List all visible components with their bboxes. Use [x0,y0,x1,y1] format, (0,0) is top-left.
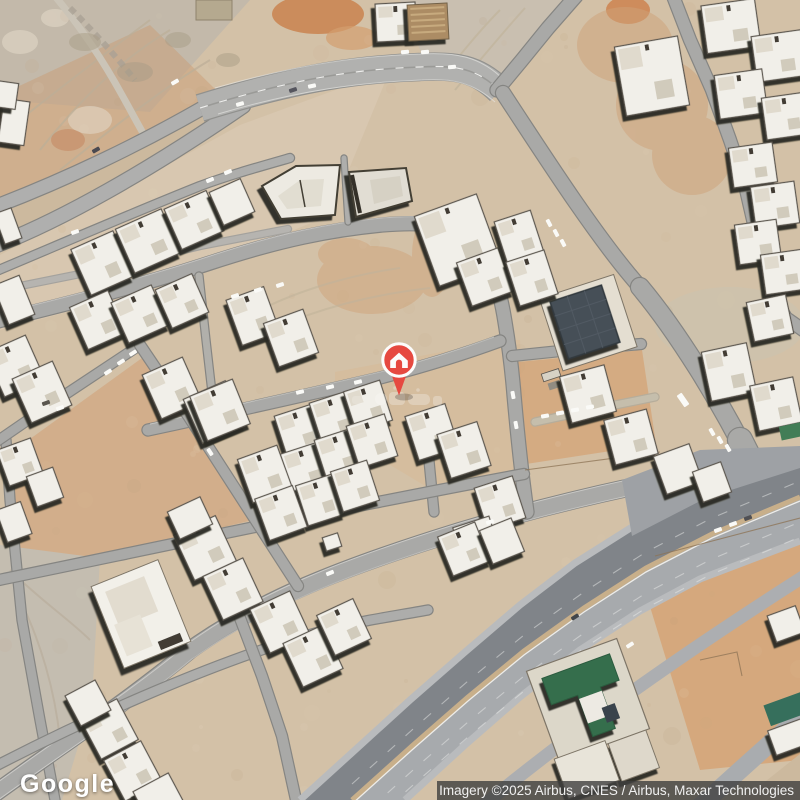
svg-text:Imagery ©2025 Airbus, CNES / A: Imagery ©2025 Airbus, CNES / Airbus, Max… [439,783,794,798]
svg-text:Google: Google [20,770,115,798]
